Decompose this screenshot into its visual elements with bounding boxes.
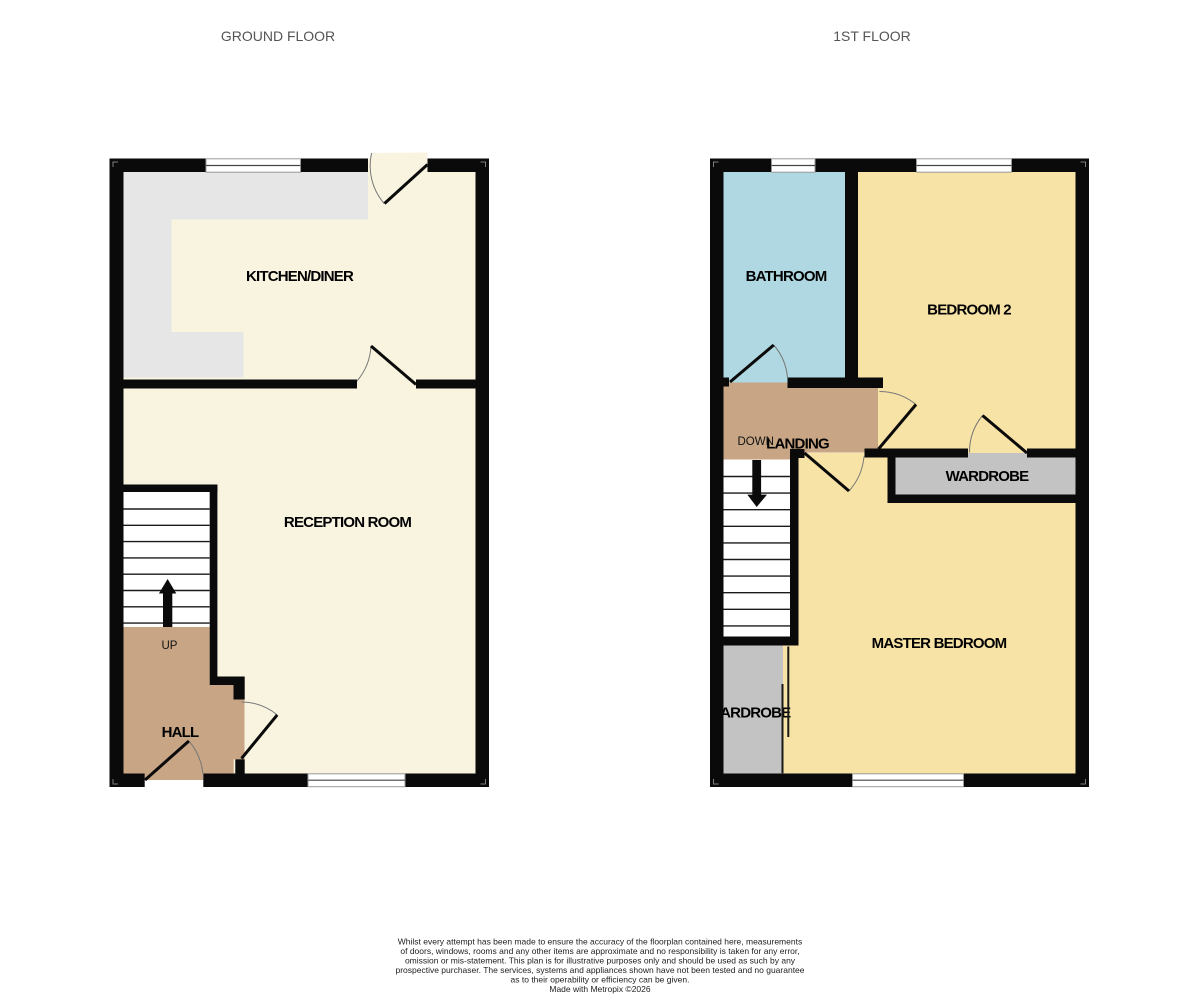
svg-text:Made with Metropix ©2026: Made with Metropix ©2026: [549, 984, 651, 994]
svg-text:GROUND FLOOR: GROUND FLOOR: [221, 28, 335, 44]
svg-text:BATHROOM: BATHROOM: [746, 268, 827, 285]
svg-text:Whilst every attempt has been: Whilst every attempt has been made to en…: [398, 936, 802, 946]
svg-text:prospective purchaser. The ser: prospective purchaser. The services, sys…: [395, 965, 804, 975]
svg-text:MASTER BEDROOM: MASTER BEDROOM: [872, 635, 1007, 652]
svg-text:HALL: HALL: [162, 724, 199, 741]
svg-text:KITCHEN/DINER: KITCHEN/DINER: [246, 268, 354, 285]
svg-text:LANDING: LANDING: [766, 436, 829, 453]
svg-text:UP: UP: [162, 640, 178, 652]
svg-text:omission or mis-statement. Thi: omission or mis-statement. This plan is …: [405, 955, 796, 965]
svg-text:1ST FLOOR: 1ST FLOOR: [833, 28, 911, 44]
svg-text:DOWN: DOWN: [737, 436, 773, 448]
svg-text:RECEPTION ROOM: RECEPTION ROOM: [284, 514, 411, 531]
svg-text:of doors, windows, rooms and a: of doors, windows, rooms and any other i…: [400, 946, 799, 956]
svg-text:BEDROOM 2: BEDROOM 2: [927, 302, 1011, 319]
svg-text:as to their operability or eff: as to their operability or efficiency ca…: [511, 974, 690, 984]
svg-text:WARDROBE: WARDROBE: [946, 468, 1030, 485]
